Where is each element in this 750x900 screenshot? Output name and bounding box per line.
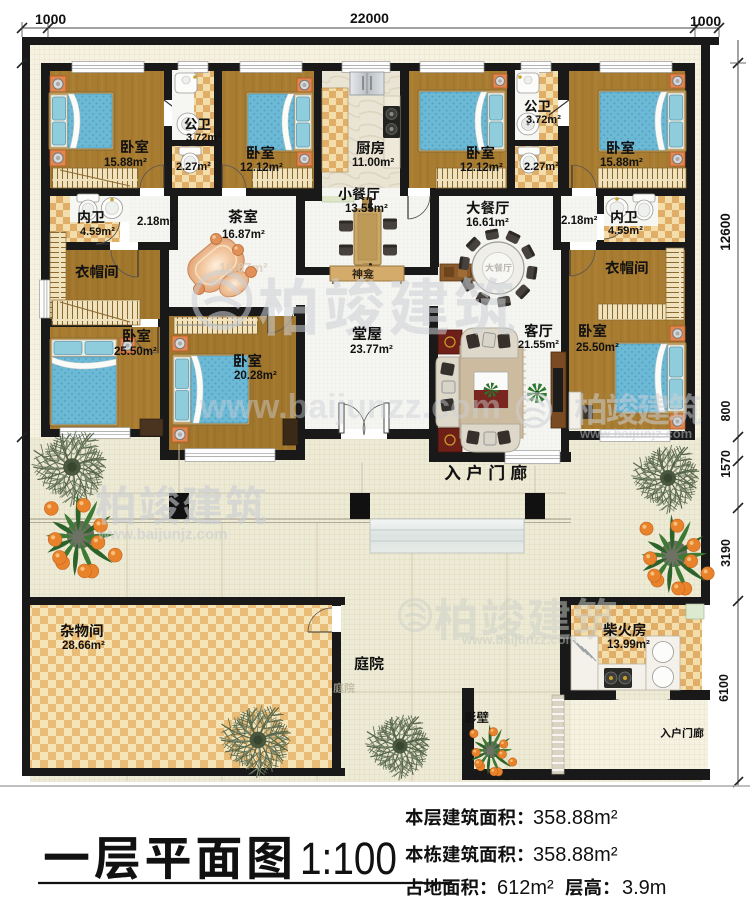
svg-text:2.18m²: 2.18m²	[137, 216, 174, 228]
svg-text:2.27m²: 2.27m²	[176, 161, 211, 173]
svg-text:4.59m²: 4.59m²	[80, 226, 115, 238]
svg-text:www.baijunzz.com: www.baijunzz.com	[199, 388, 501, 426]
svg-text:800: 800	[719, 401, 733, 422]
svg-text:1000: 1000	[690, 13, 721, 29]
svg-text:15.88m²: 15.88m²	[104, 157, 147, 169]
svg-text:www.baijunzz.com: www.baijunzz.com	[461, 632, 577, 647]
svg-text:3.9m: 3.9m	[622, 877, 666, 899]
svg-text:13.99m²: 13.99m²	[607, 639, 650, 651]
svg-text:21.55m²: 21.55m²	[518, 339, 559, 351]
svg-text:www.baijunjz.com: www.baijunjz.com	[579, 426, 692, 441]
svg-text:25.50m²: 25.50m²	[576, 342, 619, 354]
svg-text:16.61m²: 16.61m²	[466, 217, 509, 229]
svg-text:12.12m²: 12.12m²	[460, 162, 503, 174]
svg-text:13.55m²: 13.55m²	[345, 203, 388, 215]
svg-text:20.28m²: 20.28m²	[234, 370, 277, 382]
svg-text:1570: 1570	[719, 450, 733, 478]
svg-text:3.72m²: 3.72m²	[526, 114, 561, 126]
svg-text:28.66m²: 28.66m²	[62, 640, 105, 652]
svg-text:1000: 1000	[35, 11, 66, 27]
svg-text:12.12m²: 12.12m²	[240, 162, 283, 174]
svg-text:16.87m²: 16.87m²	[222, 229, 265, 241]
svg-text:4.59m²: 4.59m²	[608, 225, 643, 237]
svg-text:www.baijunjz.com: www.baijunjz.com	[97, 526, 227, 543]
svg-text:2.27m²: 2.27m²	[524, 161, 559, 173]
svg-text:11.00m²: 11.00m²	[352, 157, 394, 169]
svg-text:15.88m²: 15.88m²	[600, 157, 643, 169]
svg-text:3190: 3190	[719, 539, 733, 567]
svg-text:2.18m²: 2.18m²	[561, 215, 598, 227]
svg-text:12600: 12600	[718, 213, 733, 251]
svg-text:6100: 6100	[717, 674, 731, 702]
svg-text:1:100: 1:100	[300, 833, 397, 884]
svg-text:358.88m²: 358.88m²	[533, 807, 618, 829]
svg-text:22000: 22000	[350, 10, 389, 26]
svg-text:23.77m²: 23.77m²	[350, 344, 393, 356]
svg-text:25.50m²: 25.50m²	[114, 346, 157, 358]
svg-text:612m²: 612m²	[497, 877, 554, 899]
svg-text:3.72m²: 3.72m²	[186, 132, 221, 144]
svg-text:358.88m²: 358.88m²	[533, 844, 618, 866]
